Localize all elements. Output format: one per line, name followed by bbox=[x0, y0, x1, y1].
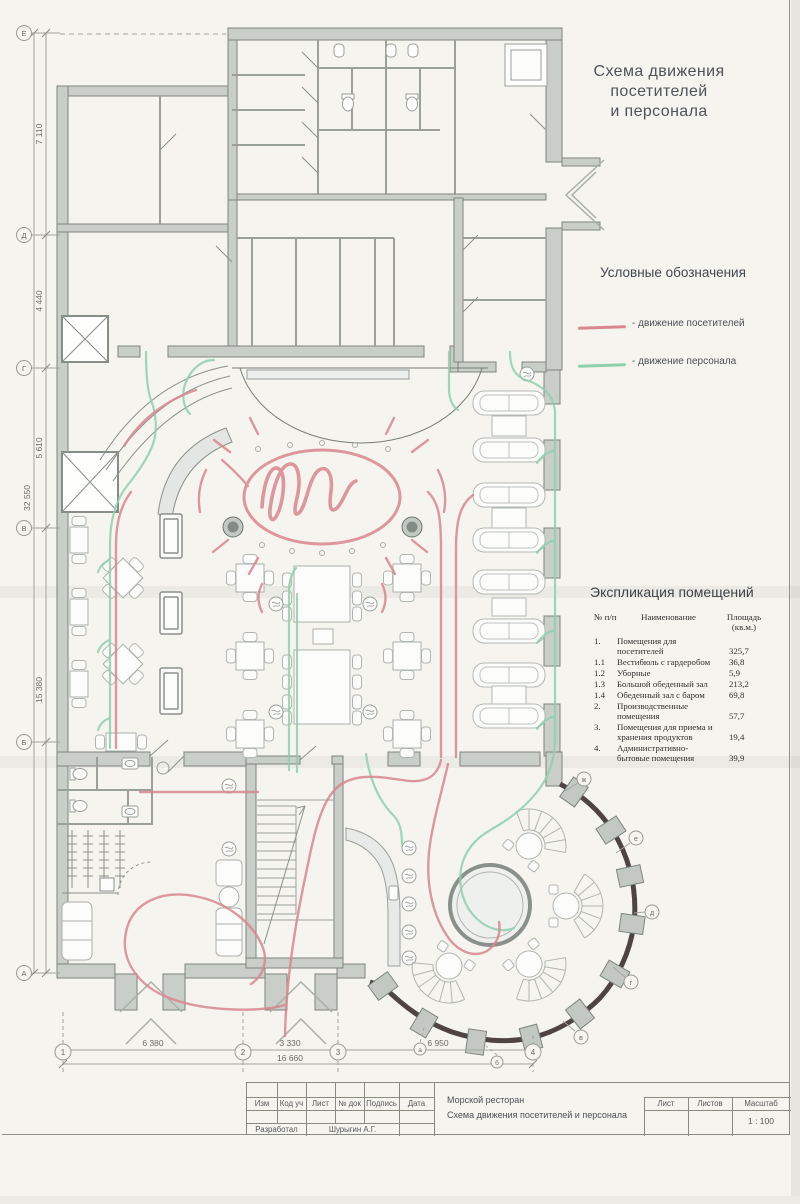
visitor-line-swatch bbox=[578, 325, 626, 330]
legend-title: Условные обозначения bbox=[592, 265, 754, 280]
svg-text:Е: Е bbox=[21, 29, 26, 38]
svg-text:3: 3 bbox=[336, 1048, 341, 1057]
explication-row: 1.1 Вестибюль с гардеробом 36,8 bbox=[594, 657, 792, 667]
dining-furniture bbox=[70, 441, 431, 758]
bar-counter bbox=[346, 828, 416, 966]
sheet-frame-right bbox=[789, 0, 790, 1135]
stamp-scale-value: 1 : 100 bbox=[732, 1115, 790, 1128]
stamp-drawing-name: Схема движения посетителей и персонала bbox=[447, 1110, 627, 1120]
col-area: Площадь (кв.м.) bbox=[720, 612, 768, 632]
title-block: Изм Код уч Лист № док Подпись Дата Разра… bbox=[246, 1082, 790, 1135]
svg-text:г: г bbox=[630, 980, 633, 987]
stamp-col-doc: № док bbox=[335, 1097, 364, 1110]
explication-title: Экспликация помещений bbox=[590, 584, 795, 600]
svg-text:Г: Г bbox=[22, 364, 26, 373]
svg-text:д: д bbox=[650, 910, 654, 917]
explication-row: 1. Помещения для посетителей 325,7 bbox=[594, 636, 792, 656]
legend-label-visitors: - движение посетителей bbox=[632, 318, 745, 329]
sheet-title-line2: посетителей bbox=[570, 82, 748, 102]
legend-label-staff: - движение персонала bbox=[632, 356, 736, 367]
stair-direction-arrow bbox=[264, 806, 305, 944]
svg-text:Д: Д bbox=[21, 231, 26, 240]
stamp-col-list: Лист bbox=[306, 1097, 335, 1110]
explication-table: № п/п Наименование Площадь (кв.м.) 1. По… bbox=[594, 612, 792, 764]
stamp-col-podpis: Подпись bbox=[364, 1097, 399, 1110]
stamp-col-izm: Изм bbox=[247, 1097, 277, 1110]
explication-row: 2. Производственные помещения 57,7 bbox=[594, 701, 792, 721]
dim-15380: 15 380 bbox=[34, 677, 44, 703]
scanned-drawing-sheet: { "title": { "line1": "Схема движения", … bbox=[0, 0, 800, 1204]
sheet-title: Схема движения посетителей и персонала bbox=[570, 62, 748, 122]
legend-item-staff: - движение персонала bbox=[578, 359, 793, 373]
legend-item-visitors: - движение посетителей bbox=[578, 321, 793, 335]
dim-4440: 4 440 bbox=[34, 290, 44, 312]
explication-row: 3. Помещения для приема и хранения проду… bbox=[594, 722, 792, 742]
svg-text:1: 1 bbox=[61, 1048, 66, 1057]
floor-plan-drawing: 7 110 4 440 5 610 15 380 32 550 6 380 3 … bbox=[0, 0, 800, 1204]
explication-row: 4. Административно-бытовые помещения 39,… bbox=[594, 743, 792, 763]
explication-row: 1.4 Обеденный зал с баром 69,8 bbox=[594, 690, 792, 700]
sheet-title-line3: и персонала bbox=[570, 102, 748, 122]
dim-6380: 6 380 bbox=[142, 1038, 164, 1048]
booth-seating bbox=[473, 367, 545, 728]
svg-text:в: в bbox=[579, 1035, 583, 1042]
stamp-project-name: Морской ресторан bbox=[447, 1095, 524, 1105]
dim-16660: 16 660 bbox=[277, 1053, 303, 1063]
svg-text:е: е bbox=[634, 836, 638, 843]
sheet-title-line1: Схема движения bbox=[570, 62, 748, 82]
stamp-scale-label: Масштаб bbox=[732, 1097, 790, 1110]
stamp-col-data: Дата bbox=[399, 1097, 434, 1110]
explication-row: 1.3 Большой обеденный зал 213,2 bbox=[594, 679, 792, 689]
svg-text:ж: ж bbox=[582, 777, 587, 784]
col-name: Наименование bbox=[617, 612, 720, 632]
stamp-col-kod: Код уч bbox=[277, 1097, 306, 1110]
stamp-developed-name: Шурыгин А.Г. bbox=[306, 1123, 399, 1136]
stamp-developed-label: Разработал bbox=[247, 1123, 306, 1136]
col-num: № п/п bbox=[594, 612, 617, 632]
explication-header: № п/п Наименование Площадь (кв.м.) bbox=[594, 612, 792, 632]
svg-text:2: 2 bbox=[241, 1048, 246, 1057]
svg-text:Б: Б bbox=[22, 738, 27, 747]
svg-text:В: В bbox=[21, 524, 26, 533]
dim-32550: 32 550 bbox=[22, 485, 32, 511]
svg-text:а: а bbox=[418, 1047, 422, 1054]
dim-5610: 5 610 bbox=[34, 437, 44, 459]
explication-row: 1.2 Уборные 5,9 bbox=[594, 668, 792, 678]
elevator-shafts bbox=[62, 316, 118, 512]
stamp-sheets-label: Листов bbox=[688, 1097, 732, 1110]
dim-3330: 3 330 bbox=[279, 1038, 301, 1048]
coat-check-racks bbox=[62, 830, 125, 893]
dim-7110: 7 110 bbox=[34, 123, 44, 144]
staff-line-swatch bbox=[578, 363, 626, 368]
dim-6950: 6 950 bbox=[427, 1038, 449, 1048]
svg-text:4: 4 bbox=[531, 1048, 536, 1057]
svg-text:б: б bbox=[495, 1059, 499, 1067]
stamp-sheet-label: Лист bbox=[644, 1097, 688, 1110]
svg-text:А: А bbox=[21, 969, 26, 978]
